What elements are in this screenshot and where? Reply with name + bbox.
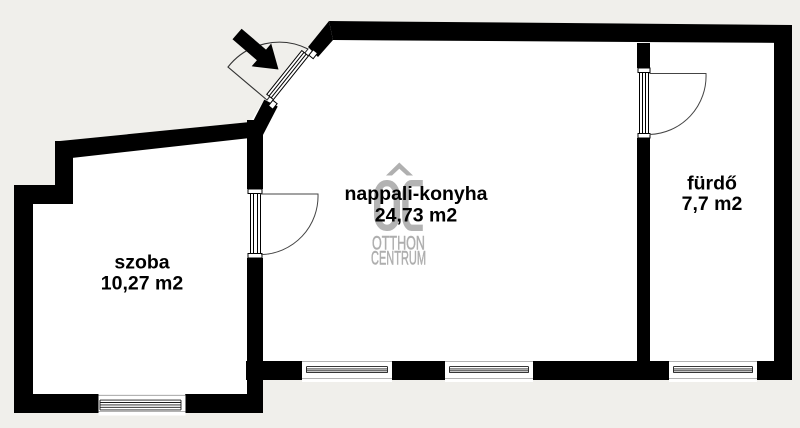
- svg-text:fürdő: fürdő: [687, 173, 737, 195]
- svg-text:nappali-konyha: nappali-konyha: [344, 183, 487, 205]
- svg-text:24,73 m2: 24,73 m2: [375, 205, 458, 227]
- svg-text:7,7 m2: 7,7 m2: [682, 193, 743, 215]
- svg-text:10,27 m2: 10,27 m2: [101, 273, 184, 295]
- svg-text:CENTRUM: CENTRUM: [371, 249, 426, 270]
- svg-text:szoba: szoba: [114, 252, 169, 274]
